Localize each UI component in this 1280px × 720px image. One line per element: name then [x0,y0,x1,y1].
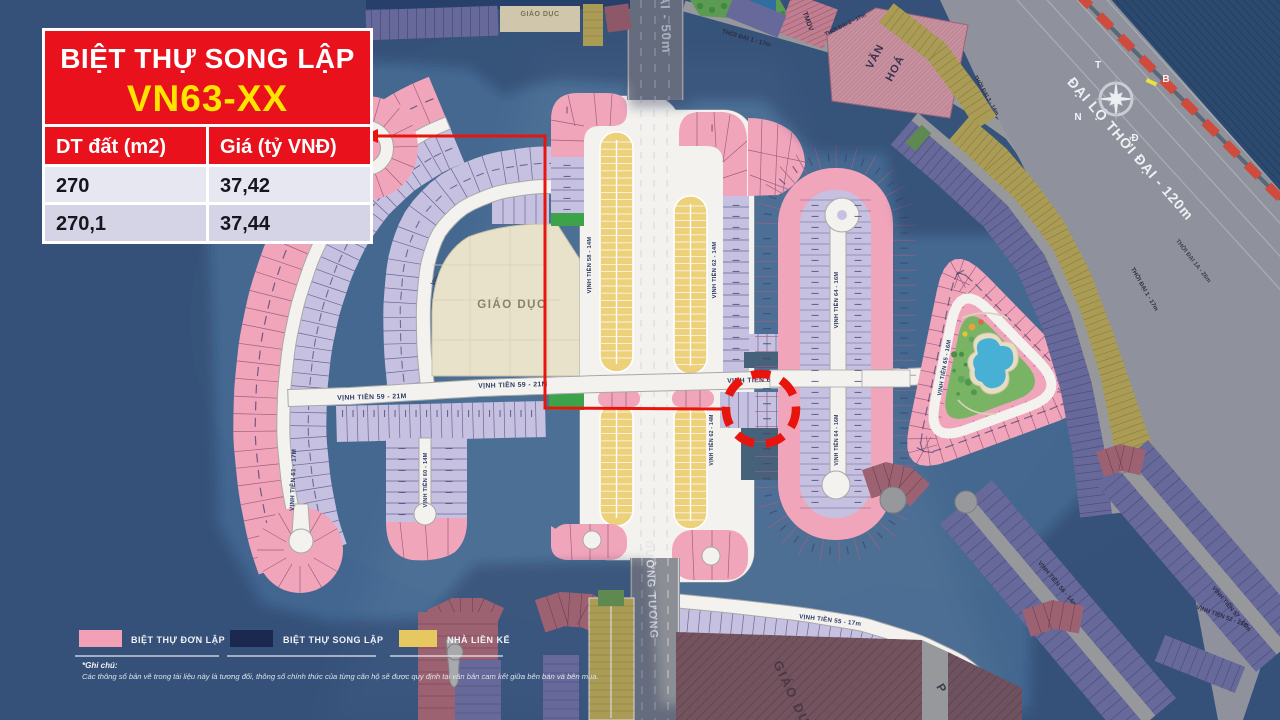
svg-text:DT đất (m2): DT đất (m2) [56,136,166,158]
svg-text:GIÁO DỤC: GIÁO DỤC [477,298,547,311]
svg-text:270,1: 270,1 [56,213,106,235]
svg-text:Giá (tỷ VNĐ): Giá (tỷ VNĐ) [220,136,337,158]
svg-text:VỊNH TIỀN 64 - 16M: VỊNH TIỀN 64 - 16M [833,414,840,465]
svg-text:VỊNH TIỀN 60 - 14M: VỊNH TIỀN 60 - 14M [422,452,429,507]
svg-text:37,44: 37,44 [220,213,271,235]
svg-text:VỊNH TIỀN 62 - 14M: VỊNH TIỀN 62 - 14M [708,414,715,465]
svg-text:Các thông số bản vẽ trong tài: Các thông số bản vẽ trong tài liệu này l… [82,672,599,681]
svg-text:*Ghi chú:: *Ghi chú: [82,661,118,670]
svg-text:BIỆT THỰ ĐƠN LẬP: BIỆT THỰ ĐƠN LẬP [131,634,225,645]
svg-text:VỊNH TIỀN 62 - 14M: VỊNH TIỀN 62 - 14M [711,242,718,299]
svg-text:37,42: 37,42 [220,175,270,197]
svg-text:Đ: Đ [1131,133,1138,144]
svg-text:BIỆT THỰ SONG LẬP: BIỆT THỰ SONG LẬP [283,634,383,645]
svg-text:VỊNH TIỀN 58 - 14M: VỊNH TIỀN 58 - 14M [586,237,593,294]
svg-text:VN63-XX: VN63-XX [127,78,288,119]
svg-text:NHÀ LIỀN KẾ: NHÀ LIỀN KẾ [447,635,510,645]
svg-text:270: 270 [56,175,89,197]
svg-text:N: N [1074,112,1081,123]
svg-text:B: B [1162,74,1169,85]
svg-text:T: T [1095,60,1101,71]
svg-text:BIỆT THỰ SONG LẬP: BIỆT THỰ SONG LẬP [60,43,355,74]
svg-text:VỊNH TIỀN 64 - 16M: VỊNH TIỀN 64 - 16M [833,272,840,329]
svg-text:GIÁO DỤC: GIÁO DỤC [521,9,560,18]
